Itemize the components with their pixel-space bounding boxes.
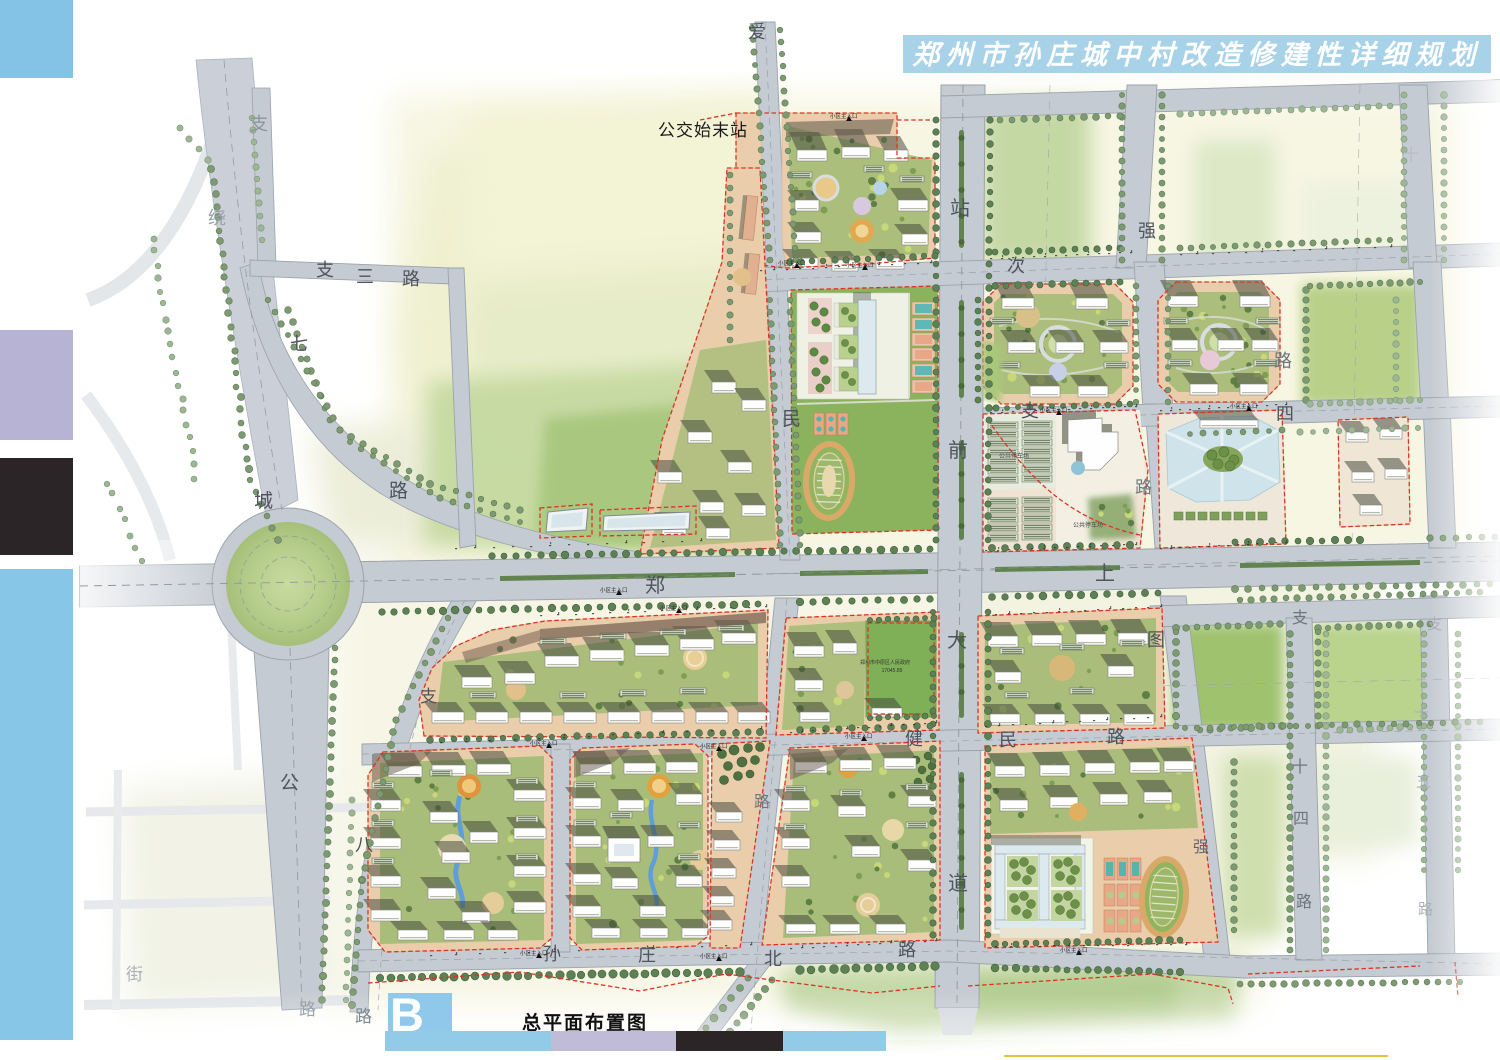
svg-text:北: 北 bbox=[764, 949, 782, 969]
svg-text:民: 民 bbox=[782, 409, 801, 430]
svg-text:强: 强 bbox=[1138, 221, 1156, 241]
svg-text:郑州市孙庄城中村改造修建性详细规划: 郑州市孙庄城中村改造修建性详细规划 bbox=[912, 40, 1482, 70]
svg-text:郑: 郑 bbox=[645, 574, 665, 597]
svg-text:四: 四 bbox=[1276, 404, 1294, 424]
svg-text:路: 路 bbox=[299, 1000, 316, 1019]
svg-text:小区主入口: 小区主入口 bbox=[660, 604, 688, 612]
svg-text:支: 支 bbox=[1427, 616, 1442, 633]
svg-text:小区主入口: 小区主入口 bbox=[700, 742, 728, 750]
svg-text:十: 十 bbox=[1414, 705, 1429, 722]
svg-text:小区主入口: 小区主入口 bbox=[700, 952, 728, 960]
svg-text:四: 四 bbox=[1293, 811, 1309, 828]
svg-text:小区主入口: 小区主入口 bbox=[530, 739, 558, 747]
svg-text:支: 支 bbox=[250, 114, 268, 134]
svg-text:上: 上 bbox=[1095, 562, 1115, 585]
svg-text:公共停车场: 公共停车场 bbox=[999, 452, 1029, 460]
svg-text:街: 街 bbox=[126, 965, 143, 984]
svg-text:支: 支 bbox=[316, 260, 334, 280]
svg-text:民: 民 bbox=[999, 730, 1017, 750]
svg-text:路: 路 bbox=[1135, 478, 1152, 497]
svg-text:小区主入口: 小区主入口 bbox=[1060, 946, 1088, 954]
svg-text:小区主入口: 小区主入口 bbox=[600, 586, 628, 594]
svg-text:八: 八 bbox=[355, 835, 373, 855]
svg-text:小区主入口: 小区主入口 bbox=[778, 259, 806, 267]
svg-text:路: 路 bbox=[1274, 351, 1292, 371]
svg-text:路: 路 bbox=[1418, 901, 1433, 918]
svg-text:小区主入口: 小区主入口 bbox=[845, 732, 873, 740]
svg-text:五: 五 bbox=[1416, 774, 1431, 791]
svg-text:十: 十 bbox=[1403, 146, 1419, 164]
svg-text:绕: 绕 bbox=[208, 208, 226, 228]
svg-text:路: 路 bbox=[1296, 893, 1312, 911]
svg-text:路: 路 bbox=[1107, 727, 1125, 747]
svg-text:前: 前 bbox=[948, 439, 968, 462]
svg-text:站: 站 bbox=[950, 197, 970, 220]
svg-text:总平面布置图: 总平面布置图 bbox=[522, 1011, 648, 1034]
svg-text:小区主入口: 小区主入口 bbox=[1040, 406, 1068, 414]
svg-text:路: 路 bbox=[355, 1007, 372, 1026]
svg-text:公: 公 bbox=[280, 773, 299, 794]
svg-text:支: 支 bbox=[1292, 609, 1308, 627]
svg-text:路: 路 bbox=[754, 793, 770, 811]
svg-text:强: 强 bbox=[1193, 839, 1209, 856]
svg-text:大: 大 bbox=[947, 629, 967, 652]
svg-text:城: 城 bbox=[254, 490, 273, 512]
svg-text:七: 七 bbox=[290, 334, 308, 354]
svg-text:爱: 爱 bbox=[748, 22, 766, 42]
svg-text:次: 次 bbox=[1007, 256, 1025, 276]
svg-text:十: 十 bbox=[1292, 758, 1308, 776]
svg-text:小区主入口: 小区主入口 bbox=[830, 112, 858, 120]
svg-text:小区主入口: 小区主入口 bbox=[520, 949, 548, 957]
svg-text:小区主入口: 小区主入口 bbox=[846, 261, 874, 269]
svg-text:路: 路 bbox=[898, 940, 916, 960]
svg-text:路: 路 bbox=[402, 269, 420, 289]
svg-text:道: 道 bbox=[948, 872, 968, 895]
svg-text:图: 图 bbox=[1147, 630, 1165, 650]
svg-text:支: 支 bbox=[420, 687, 437, 706]
svg-text:小区主入口: 小区主入口 bbox=[1230, 402, 1258, 410]
svg-text:路: 路 bbox=[389, 480, 408, 502]
svg-text:公交始末站: 公交始末站 bbox=[658, 121, 748, 140]
svg-text:17045.89: 17045.89 bbox=[882, 668, 903, 674]
svg-text:健: 健 bbox=[905, 729, 923, 749]
svg-text:三: 三 bbox=[356, 267, 374, 287]
